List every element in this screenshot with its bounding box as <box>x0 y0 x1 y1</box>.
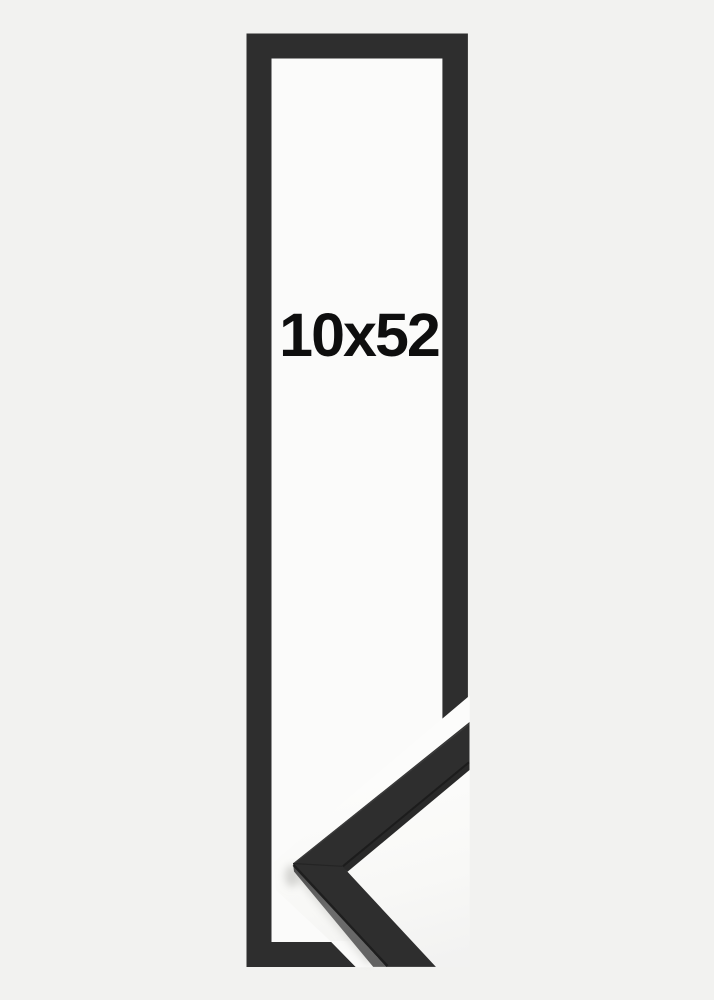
svg-text:10x52: 10x52 <box>279 301 439 369</box>
